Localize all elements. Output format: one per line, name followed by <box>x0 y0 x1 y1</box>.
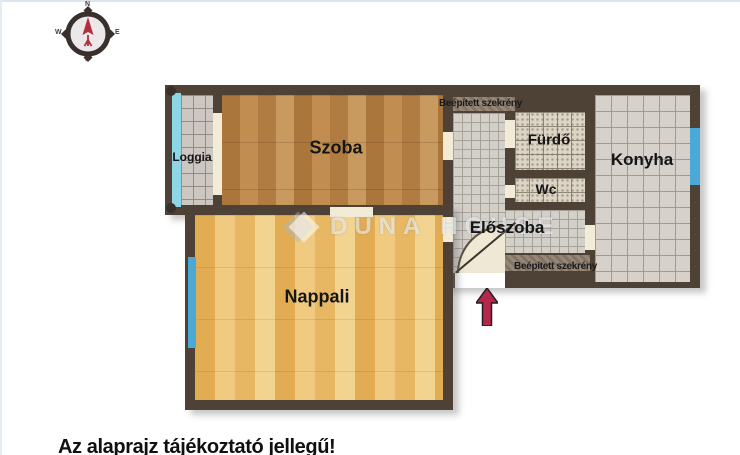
floorplan-page: N E S W <box>0 0 740 455</box>
furdo-label: Fürdő <box>528 132 571 149</box>
entrance-opening <box>455 273 505 288</box>
right-wall-block <box>443 85 700 288</box>
duna-house-logo-icon <box>284 209 320 245</box>
built-in-closet-top-label: Beépített szekrény <box>439 98 522 109</box>
konyha-label: Konyha <box>611 150 673 170</box>
loggia-label: Loggia <box>172 150 211 164</box>
nappali-label: Nappali <box>284 287 349 308</box>
furdo-door-opening <box>505 120 515 148</box>
page-left-border <box>0 0 2 455</box>
konyha-door-opening <box>585 225 595 250</box>
wall-corner-knob <box>166 86 176 96</box>
compass-east-label: E <box>115 29 120 36</box>
eloszoba-label: Előszoba <box>470 218 545 238</box>
built-in-closet-bottom-label: Beépített szekrény <box>514 261 597 272</box>
compass-west-label: W <box>55 29 62 36</box>
szoba-eloszoba-door-opening <box>443 132 453 160</box>
wall-corner-knob <box>166 203 176 213</box>
konyha-window <box>690 128 700 185</box>
disclaimer-text: Az alaprajz tájékoztató jellegű! <box>58 436 335 455</box>
loggia-door-opening <box>213 113 222 195</box>
nappali-window <box>188 257 196 348</box>
wc-door-opening <box>505 185 515 198</box>
wc-label: Wc <box>536 181 557 197</box>
compass-south-label: S <box>85 56 90 63</box>
page-top-border <box>0 0 740 2</box>
compass-north-label: N <box>85 1 90 8</box>
szoba-label: Szoba <box>309 138 362 159</box>
entrance-arrow-icon <box>476 288 498 326</box>
konyha-floor <box>595 95 690 282</box>
compass-rose: N E S W <box>55 3 121 65</box>
